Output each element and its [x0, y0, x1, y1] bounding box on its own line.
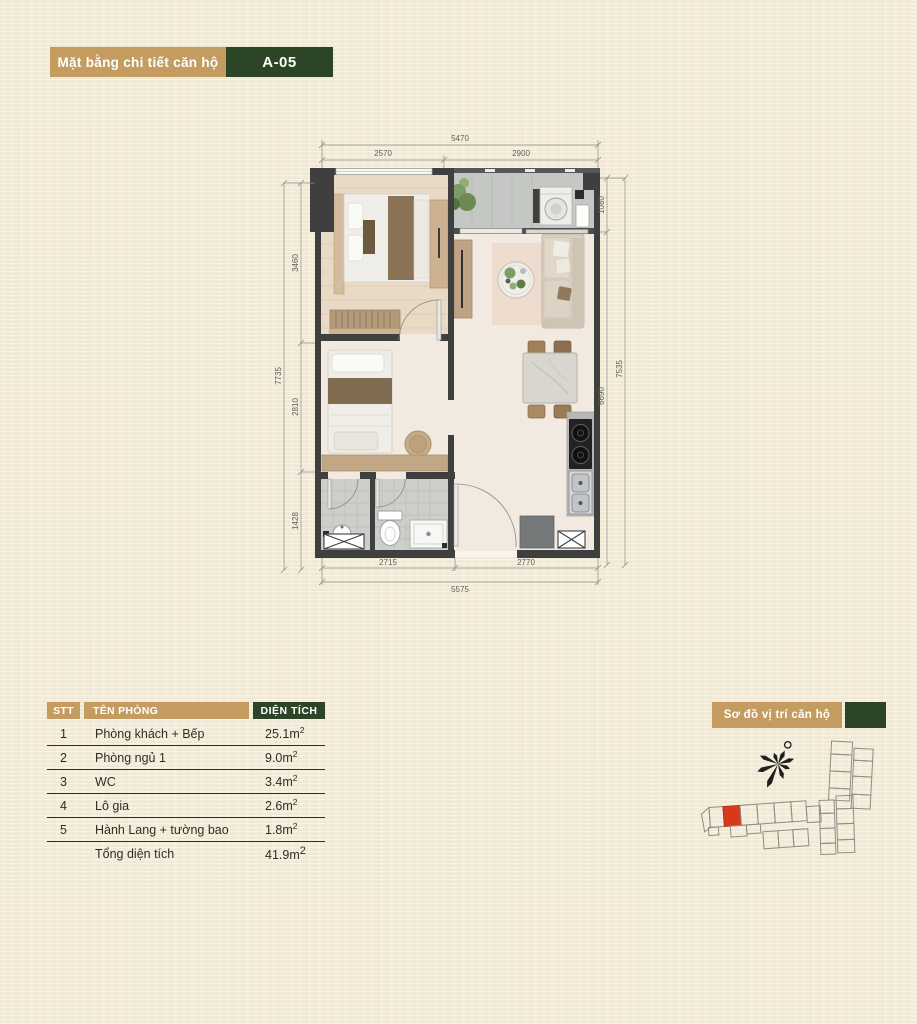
dim-right-1: 1080 — [597, 196, 606, 214]
plan-title-bar: Mặt bằng chi tiết căn hộ — [50, 47, 226, 77]
col-header-area: DIỆN TÍCH — [253, 702, 325, 719]
dim-left-overall: 7735 — [274, 367, 283, 385]
table-row: 3 WC 3.4m2 — [47, 770, 325, 794]
unit-code-badge: A-05 — [226, 47, 333, 77]
toilet — [378, 511, 402, 546]
compass-icon — [757, 741, 795, 789]
compass-north-marker — [783, 741, 792, 750]
table-row: 2 Phòng ngủ 1 9.0m2 — [47, 746, 325, 770]
coffee-table — [498, 262, 534, 298]
row-room: Hành Lang + tường bao — [80, 823, 265, 837]
unit-code: A-05 — [262, 54, 297, 71]
ac-ledge — [576, 205, 589, 227]
dim-bottom-left: 2715 — [379, 558, 397, 567]
table-total-row: Tổng diện tích 41.9m2 — [47, 842, 325, 866]
location-title: Sơ đồ vị trí căn hộ — [724, 709, 831, 721]
row-room: Phòng khách + Bếp — [80, 727, 265, 741]
sliding-door — [454, 228, 594, 234]
tv-cabinet — [454, 240, 472, 318]
location-title-accent — [845, 702, 886, 728]
tower-block-lower — [819, 795, 855, 854]
row-stt: 3 — [47, 775, 80, 789]
dim-bottom-right: 2770 — [517, 558, 535, 567]
console-shelf — [322, 455, 448, 471]
dim-left-2: 2810 — [291, 398, 300, 416]
pouf — [405, 431, 431, 457]
single-bed — [328, 350, 392, 453]
dining-table — [523, 353, 577, 403]
kitchen-cabinet — [520, 516, 554, 548]
row-area: 2.6m2 — [265, 797, 325, 813]
total-area: 41.9m2 — [265, 845, 325, 862]
bedroom-window — [336, 169, 432, 175]
location-title-bar: Sơ đồ vị trí căn hộ — [712, 702, 842, 728]
bed-runner — [388, 196, 414, 280]
cooktop — [569, 419, 592, 469]
row-room: Phòng ngủ 1 — [80, 751, 265, 765]
row-stt: 1 — [47, 727, 80, 741]
washing-machine — [540, 187, 572, 225]
dim-bottom-overall: 5575 — [451, 585, 469, 594]
shower — [410, 520, 447, 548]
dim-left-3: 1428 — [291, 512, 300, 530]
dim-right-overall: 7535 — [615, 360, 624, 378]
col-header-room: TÊN PHÒNG — [84, 702, 249, 719]
row-room: Lô gia — [80, 799, 265, 813]
row-stt: 2 — [47, 751, 80, 765]
plan-title: Mặt bằng chi tiết căn hộ — [58, 55, 219, 70]
row-area: 25.1m2 — [265, 725, 325, 741]
building-outline — [701, 800, 823, 853]
balcony-railing — [454, 168, 600, 173]
dim-top-overall: 5470 — [451, 134, 469, 143]
dim-right-2: 6690 — [597, 387, 606, 405]
table-row: 4 Lô gia 2.6m2 — [47, 794, 325, 818]
dark-throw-pillow — [363, 220, 375, 254]
kitchen-sink — [569, 471, 592, 514]
row-area: 1.8m2 — [265, 821, 325, 837]
table-row: 1 Phòng khách + Bếp 25.1m2 — [47, 722, 325, 746]
site-location-diagram — [700, 732, 890, 860]
area-table-header: STT TÊN PHÒNG DIỆN TÍCH — [47, 702, 325, 719]
area-table: STT TÊN PHÒNG DIỆN TÍCH 1 Phòng khách + … — [47, 702, 325, 866]
col-header-stt: STT — [47, 702, 80, 719]
row-area: 3.4m2 — [265, 773, 325, 789]
tower-block-upper — [828, 741, 873, 809]
dim-left-1: 3460 — [291, 254, 300, 272]
row-stt: 5 — [47, 823, 80, 837]
row-room: WC — [80, 775, 265, 789]
unit-highlight — [723, 805, 741, 826]
table-row: 5 Hành Lang + tường bao 1.8m2 — [47, 818, 325, 842]
row-stt: 4 — [47, 799, 80, 813]
dresser — [330, 310, 400, 337]
brochure-page: { "page": { "background": "#f2ebd9" }, "… — [0, 0, 917, 1024]
sofa — [542, 234, 584, 328]
row-area: 9.0m2 — [265, 749, 325, 765]
floor-plan: 5470 2570 2900 7735 3460 2810 1428 1080 … — [270, 110, 650, 605]
dim-top-right: 2900 — [512, 149, 530, 158]
bed-headboard — [334, 194, 344, 294]
dim-top-left: 2570 — [374, 149, 392, 158]
total-label: Tổng diện tích — [80, 847, 265, 861]
